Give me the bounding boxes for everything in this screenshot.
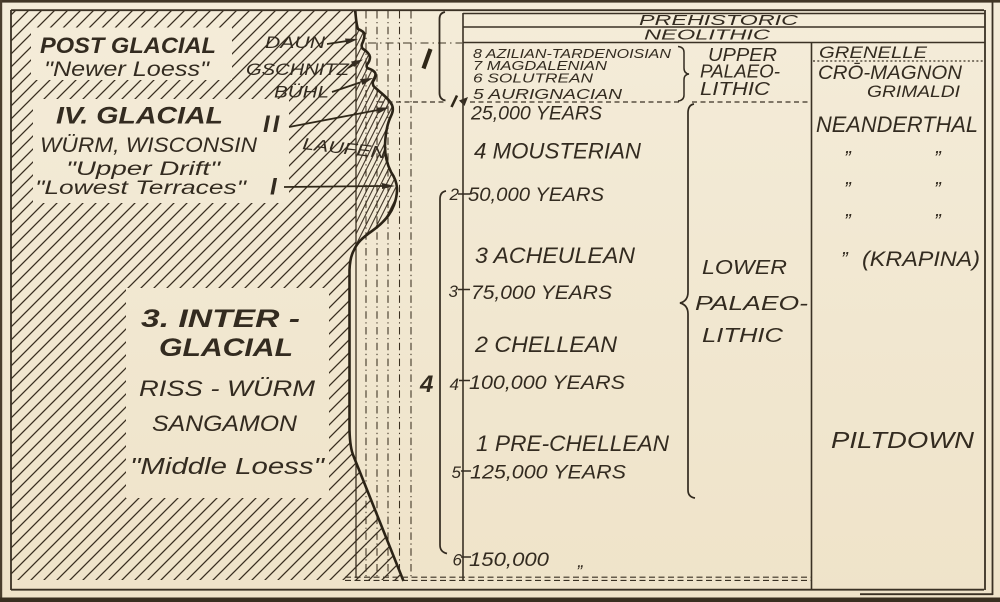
svg-text:GRENELLE: GRENELLE <box>819 44 928 62</box>
svg-text:II: II <box>263 111 282 138</box>
svg-text:4: 4 <box>419 371 433 398</box>
svg-text:2: 2 <box>449 185 460 204</box>
svg-text:150,000: 150,000 <box>469 550 549 571</box>
svg-text:4: 4 <box>450 375 459 394</box>
svg-text:CRŌ-MAGNON: CRŌ-MAGNON <box>818 63 962 84</box>
svg-text:125,000 YEARS: 125,000 YEARS <box>470 463 626 484</box>
svg-text:5: 5 <box>452 463 462 482</box>
svg-text:NEOLITHIC: NEOLITHIC <box>644 27 770 44</box>
svg-text:SANGAMON: SANGAMON <box>152 411 297 436</box>
svg-text:PILTDOWN: PILTDOWN <box>831 427 974 453</box>
svg-text:"Middle Loess": "Middle Loess" <box>130 453 326 479</box>
svg-text:3. INTER -: 3. INTER - <box>141 305 300 333</box>
svg-text:3: 3 <box>449 282 459 301</box>
svg-text:5 AURIGNACIAN: 5 AURIGNACIAN <box>473 86 622 103</box>
svg-text:6 SOLUTREAN: 6 SOLUTREAN <box>473 71 594 86</box>
svg-text:50,000 YEARS: 50,000 YEARS <box>468 185 604 206</box>
svg-text:25,000 YEARS: 25,000 YEARS <box>470 104 602 125</box>
svg-text:1 PRE-CHELLEAN: 1 PRE-CHELLEAN <box>476 431 669 456</box>
svg-text:2 CHELLEAN: 2 CHELLEAN <box>474 332 617 357</box>
svg-text:RISS - WÜRM: RISS - WÜRM <box>139 376 316 401</box>
svg-text:IV. GLACIAL: IV. GLACIAL <box>56 103 223 130</box>
svg-text:"Lowest Terraces": "Lowest Terraces" <box>35 178 248 199</box>
svg-text:DAUN: DAUN <box>265 34 325 52</box>
svg-text:LITHIC: LITHIC <box>700 79 771 99</box>
svg-text:WÜRM, WISCONSIN: WÜRM, WISCONSIN <box>40 134 258 157</box>
svg-text:100,000 YEARS: 100,000 YEARS <box>469 373 625 394</box>
svg-text:(KRAPINA): (KRAPINA) <box>862 248 980 271</box>
svg-text:POST GLACIAL: POST GLACIAL <box>40 33 216 58</box>
svg-text:6: 6 <box>453 551 463 570</box>
svg-text:GSCHNITZ: GSCHNITZ <box>246 61 350 79</box>
svg-text:4 MOUSTERIAN: 4 MOUSTERIAN <box>474 139 641 164</box>
svg-text:LITHIC: LITHIC <box>702 325 784 347</box>
svg-text:3 ACHEULEAN: 3 ACHEULEAN <box>475 243 635 268</box>
svg-text:LOWER: LOWER <box>702 257 787 279</box>
svg-text:GLACIAL: GLACIAL <box>159 334 293 362</box>
svg-text:"Newer Loess": "Newer Loess" <box>44 58 211 81</box>
svg-text:GRIMALDI: GRIMALDI <box>867 82 960 101</box>
svg-text:BÜHL: BÜHL <box>274 84 329 102</box>
svg-text:„: „ <box>577 551 584 571</box>
svg-text:PALAEO-: PALAEO- <box>695 293 808 315</box>
svg-text:NEANDERTHAL: NEANDERTHAL <box>816 112 978 137</box>
svg-text:"Upper Drift": "Upper Drift" <box>66 159 222 180</box>
svg-text:75,000 YEARS: 75,000 YEARS <box>471 283 612 304</box>
